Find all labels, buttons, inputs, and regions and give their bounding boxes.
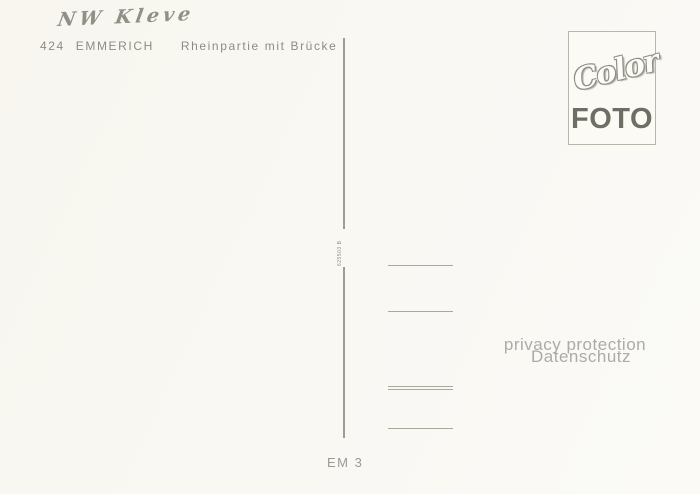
address-line [388,428,453,429]
address-line [388,311,453,312]
handwritten-note: NW Kleve [56,3,196,31]
logo-script-word: Color [570,45,656,98]
address-line-double [388,386,453,390]
series-code: EM 3 [327,455,363,470]
caption-row: 424 EMMERICH Rheinpartie mit Brücke [40,39,337,53]
city-name: EMMERICH [76,39,154,53]
center-divider-top [343,38,345,229]
logo-block-word: FOTO [569,103,655,136]
view-caption: Rheinpartie mit Brücke [181,39,338,53]
postal-code-number: 424 [40,39,65,53]
color-foto-logo: Color FOTO [568,31,656,145]
privacy-watermark: privacy protection Datenschutz [480,339,670,363]
printer-code: 625503 B [337,231,343,266]
postcard-back: NW Kleve 424 EMMERICH Rheinpartie mit Br… [0,0,700,494]
center-divider-bottom [343,267,345,438]
address-line [388,265,453,266]
